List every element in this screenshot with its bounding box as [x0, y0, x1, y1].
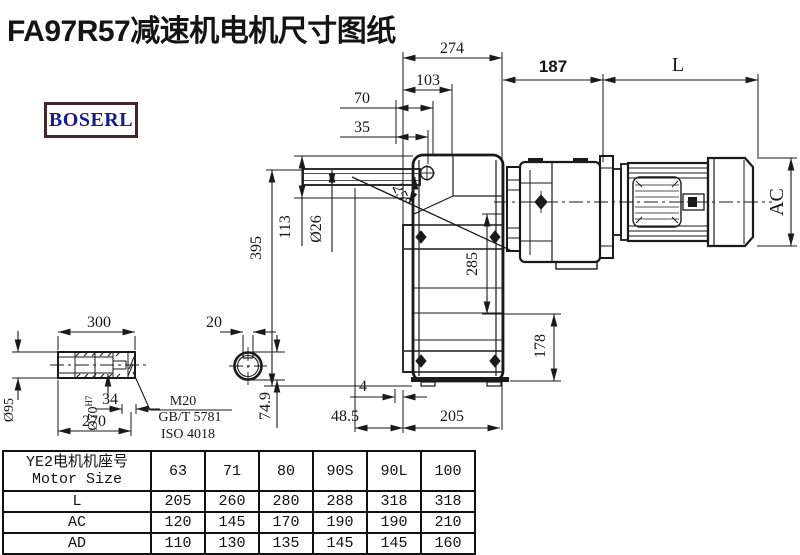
table-row-AC: AC 120 145 170 190 190 210 — [3, 512, 475, 533]
motor-size-table: YE2电机机座号 Motor Size 63 71 80 90S 90L 100… — [2, 450, 476, 555]
header-motor-size: YE2电机机座号 Motor Size — [3, 451, 151, 491]
cell: 145 — [313, 533, 367, 554]
dim-L: L — [672, 54, 684, 76]
cell: 145 — [367, 533, 421, 554]
gear-unit-r57 — [507, 156, 613, 269]
cell: 260 — [205, 491, 259, 512]
dim-74-9: 74.9 — [257, 392, 274, 420]
table-row-L: L 205 260 280 288 318 318 — [3, 491, 475, 512]
callout-iso: ISO 4018 — [161, 427, 215, 442]
dim-113: 113 — [277, 215, 294, 238]
dim-70: 70 — [354, 90, 370, 107]
size-col: 90S — [313, 451, 367, 491]
centerlines — [50, 202, 772, 385]
dim-dia95: Ø95 — [2, 398, 17, 422]
cell: 170 — [259, 512, 313, 533]
table-row-AD: AD 110 130 135 145 145 160 — [3, 533, 475, 554]
dim-103: 103 — [416, 72, 440, 89]
dim-285: 285 — [464, 252, 481, 276]
dim-395: 395 — [248, 236, 265, 260]
cell: 130 — [205, 533, 259, 554]
cell: 160 — [421, 533, 475, 554]
row-label: AD — [3, 533, 151, 554]
dim-48-5: 48.5 — [331, 408, 359, 425]
dim-300: 300 — [87, 314, 111, 331]
cell: 190 — [367, 512, 421, 533]
dim-AC: AC — [766, 188, 788, 216]
dim-4: 4 — [359, 378, 367, 395]
cell: 210 — [421, 512, 475, 533]
dim-34: 34 — [102, 391, 118, 408]
cell: 288 — [313, 491, 367, 512]
dim-187: 187 — [539, 57, 567, 76]
dim-274: 274 — [440, 40, 464, 57]
dim-20: 20 — [206, 314, 222, 331]
cell: 318 — [367, 491, 421, 512]
header-cn: YE2电机机座号 — [4, 454, 150, 471]
cell: 280 — [259, 491, 313, 512]
cell: 120 — [151, 512, 205, 533]
dim-270: 270 — [82, 413, 106, 430]
cell: 318 — [421, 491, 475, 512]
dim-dia26: Ø26 — [308, 215, 325, 243]
cell: 145 — [205, 512, 259, 533]
cell: 135 — [259, 533, 313, 554]
brand-logo: BOSERL — [44, 102, 138, 138]
cell: 110 — [151, 533, 205, 554]
size-col: 100 — [421, 451, 475, 491]
size-col: 90L — [367, 451, 421, 491]
row-label: AC — [3, 512, 151, 533]
cell: 190 — [313, 512, 367, 533]
size-col: 63 — [151, 451, 205, 491]
table-header-row: YE2电机机座号 Motor Size 63 71 80 90S 90L 100 — [3, 451, 475, 491]
page: FA97R57减速机电机尺寸图纸 BOSERL — [0, 0, 800, 555]
row-label: L — [3, 491, 151, 512]
size-col: 80 — [259, 451, 313, 491]
header-en: Motor Size — [4, 471, 150, 488]
dim-205: 205 — [440, 408, 464, 425]
cell: 205 — [151, 491, 205, 512]
size-col: 71 — [205, 451, 259, 491]
callout-gbt: GB/T 5781 — [158, 410, 221, 425]
dim-35: 35 — [354, 119, 370, 136]
page-title: FA97R57减速机电机尺寸图纸 — [7, 6, 396, 50]
dim-178: 178 — [532, 334, 549, 358]
callout-m20: M20 — [170, 394, 196, 409]
